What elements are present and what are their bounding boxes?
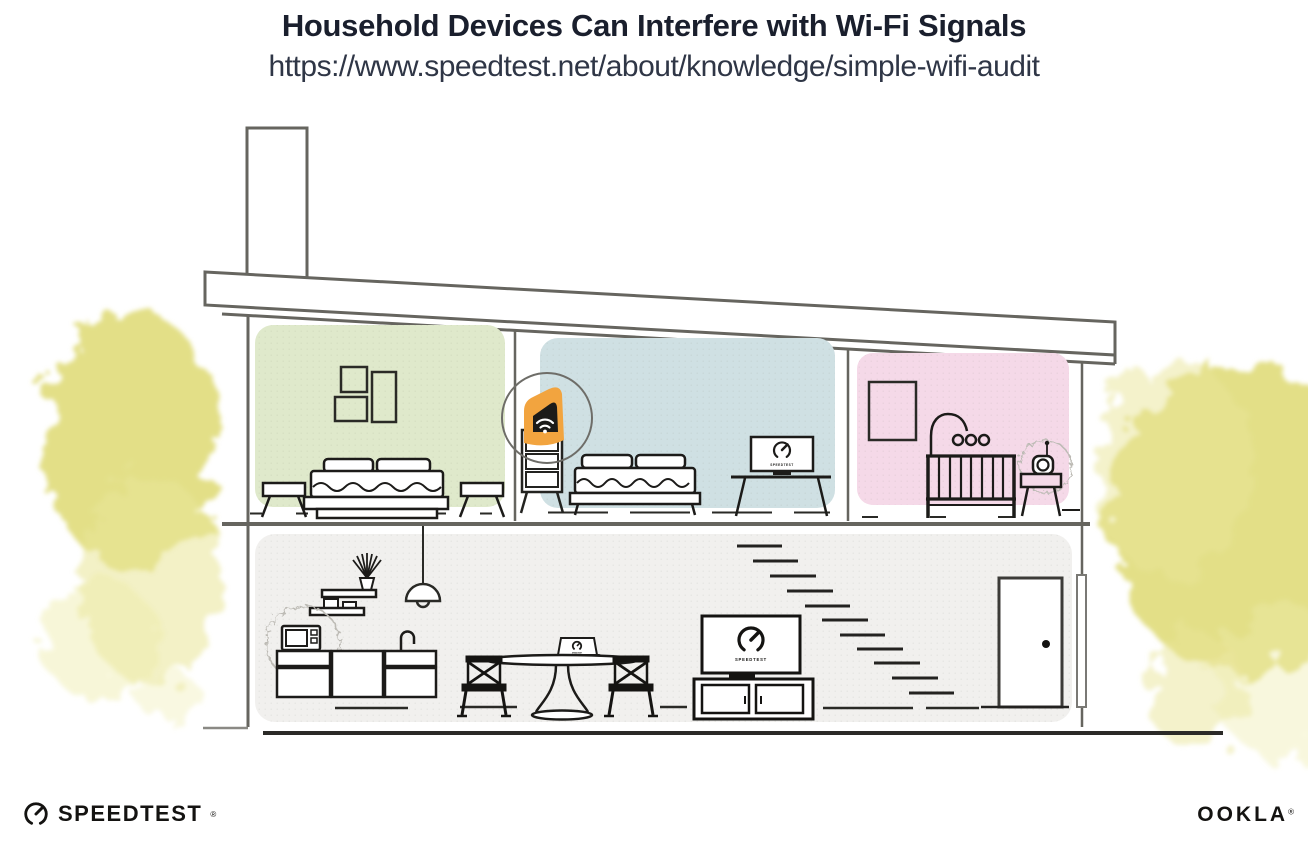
registered-mark: ® xyxy=(210,810,216,819)
laptop-stand xyxy=(773,471,791,475)
cup xyxy=(324,599,338,608)
registered-mark: ® xyxy=(1288,808,1294,817)
bed-base-2 xyxy=(317,509,437,518)
tv-console xyxy=(694,679,813,719)
bed-base xyxy=(570,493,700,504)
bedroom-blue: SPEEDTEST xyxy=(502,338,835,516)
pillow xyxy=(582,455,632,468)
tv: SPEEDTEST xyxy=(702,616,800,678)
screen-label: SPEEDTEST xyxy=(770,463,793,467)
door-knob xyxy=(1042,640,1050,648)
living-floor: SPEEDTEST xyxy=(255,526,1086,722)
crib xyxy=(926,456,1016,518)
mattress xyxy=(311,471,443,497)
tree-right xyxy=(1095,360,1308,760)
bedroom-green xyxy=(250,325,508,518)
speedtest-gauge-icon xyxy=(22,800,50,828)
infographic-canvas: Household Devices Can Interfere with Wi-… xyxy=(0,0,1308,861)
microwave xyxy=(282,626,320,650)
speedtest-logo: SPEEDTEST® xyxy=(22,800,216,828)
wifi-router xyxy=(524,387,564,445)
ookla-logo: OOKLA® xyxy=(1197,803,1294,827)
speedtest-wordmark: SPEEDTEST xyxy=(58,801,202,827)
chimney-fill xyxy=(247,128,307,275)
tv-stand xyxy=(729,674,755,678)
microwave-button xyxy=(311,638,317,643)
house-illustration: SPEEDTEST xyxy=(0,0,1308,861)
pillow xyxy=(636,455,685,468)
screen-label: SPEEDTEST xyxy=(735,657,767,662)
tree-left xyxy=(40,310,220,722)
microwave-button xyxy=(311,630,317,635)
bed-base xyxy=(304,497,448,509)
bed-green xyxy=(304,459,448,518)
nursery-pink xyxy=(857,353,1080,518)
downspout xyxy=(1077,575,1086,707)
ookla-wordmark: OOKLA xyxy=(1197,803,1288,826)
